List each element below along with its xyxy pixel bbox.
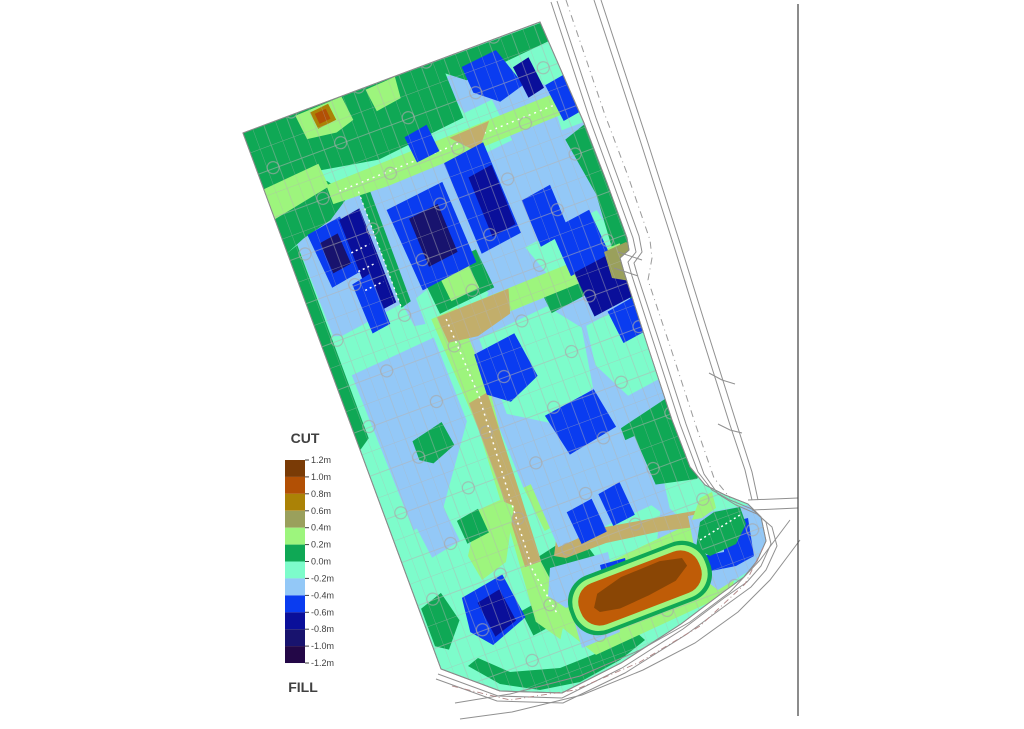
svg-text:0.6m: 0.6m <box>311 506 331 516</box>
svg-text:-0.8m: -0.8m <box>311 624 334 634</box>
svg-text:0.8m: 0.8m <box>311 489 331 499</box>
svg-text:FILL: FILL <box>288 679 318 695</box>
svg-text:0.0m: 0.0m <box>311 557 331 567</box>
svg-text:-1.2m: -1.2m <box>311 658 334 668</box>
svg-text:-0.2m: -0.2m <box>311 573 334 583</box>
svg-text:-1.0m: -1.0m <box>311 641 334 651</box>
svg-text:0.2m: 0.2m <box>311 540 331 550</box>
svg-text:-0.4m: -0.4m <box>311 590 334 600</box>
svg-text:1.2m: 1.2m <box>311 455 331 465</box>
svg-text:-0.6m: -0.6m <box>311 607 334 617</box>
svg-text:0.4m: 0.4m <box>311 523 331 533</box>
svg-text:1.0m: 1.0m <box>311 472 331 482</box>
svg-text:CUT: CUT <box>291 430 320 446</box>
